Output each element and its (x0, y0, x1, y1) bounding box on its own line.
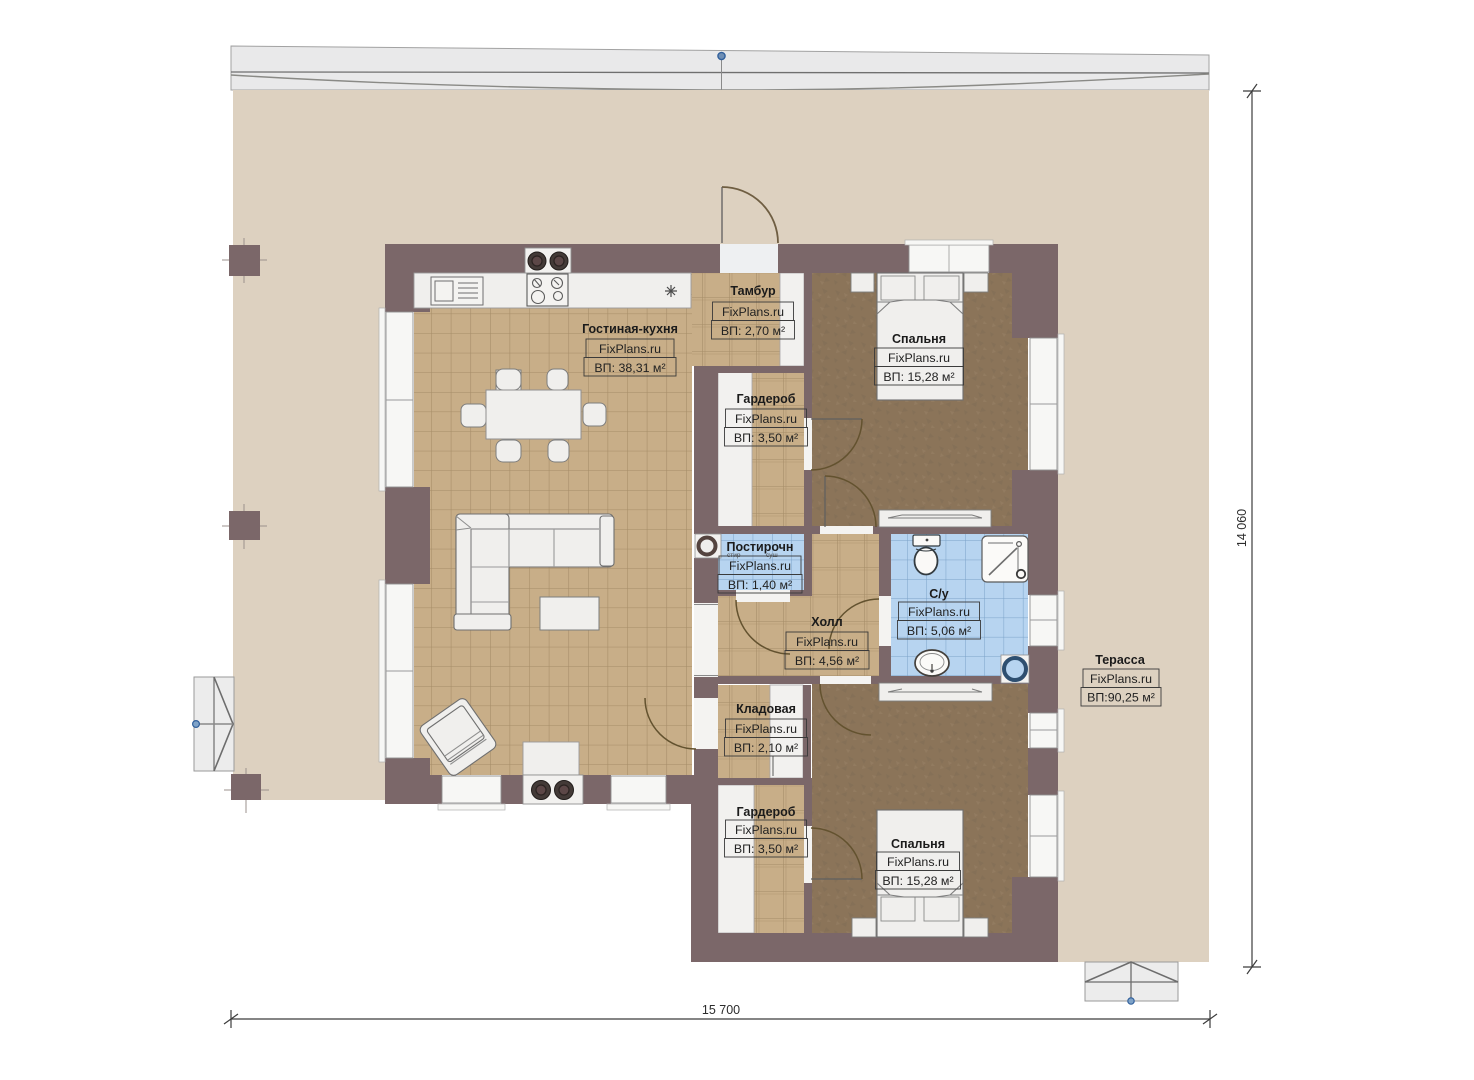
svg-text:15 700: 15 700 (702, 1003, 740, 1017)
svg-text:ВП: 15,28 м²: ВП: 15,28 м² (883, 370, 954, 384)
svg-text:FixPlans.ru: FixPlans.ru (887, 855, 949, 869)
svg-text:FixPlans.ru: FixPlans.ru (908, 605, 970, 619)
svg-text:ВП: 15,28 м²: ВП: 15,28 м² (882, 874, 953, 888)
svg-text:FixPlans.ru: FixPlans.ru (1090, 672, 1152, 686)
svg-text:FixPlans.ru: FixPlans.ru (735, 823, 797, 837)
svg-text:Спальня: Спальня (891, 837, 945, 851)
svg-text:Холл: Холл (811, 615, 842, 629)
svg-text:Гардероб: Гардероб (736, 805, 795, 819)
svg-text:FixPlans.ru: FixPlans.ru (796, 635, 858, 649)
svg-text:ВП: 3,50 м²: ВП: 3,50 м² (734, 842, 798, 856)
svg-text:ВП: 2,70 м²: ВП: 2,70 м² (721, 324, 785, 338)
svg-text:FixPlans.ru: FixPlans.ru (729, 559, 791, 573)
svg-text:Кладовая: Кладовая (736, 702, 796, 716)
svg-text:14 060: 14 060 (1235, 509, 1249, 547)
svg-text:ВП: 2,10 м²: ВП: 2,10 м² (734, 741, 798, 755)
svg-text:FixPlans.ru: FixPlans.ru (722, 305, 784, 319)
svg-text:ВП: 1,40 м²: ВП: 1,40 м² (728, 578, 792, 592)
svg-text:ВП: 38,31 м²: ВП: 38,31 м² (594, 361, 665, 375)
svg-text:ВП: 5,06 м²: ВП: 5,06 м² (907, 624, 971, 638)
svg-text:Постирочн: Постирочн (727, 540, 794, 554)
svg-text:FixPlans.ru: FixPlans.ru (888, 351, 950, 365)
svg-text:FixPlans.ru: FixPlans.ru (599, 342, 661, 356)
svg-text:FixPlans.ru: FixPlans.ru (735, 722, 797, 736)
svg-text:Гардероб: Гардероб (736, 392, 795, 406)
svg-text:ВП: 4,56 м²: ВП: 4,56 м² (795, 654, 859, 668)
svg-text:FixPlans.ru: FixPlans.ru (735, 412, 797, 426)
svg-text:С/у: С/у (929, 587, 949, 601)
svg-text:Гостиная-кухня: Гостиная-кухня (582, 322, 678, 336)
svg-text:ВП:90,25 м²: ВП:90,25 м² (1087, 691, 1155, 705)
svg-text:Терасса: Терасса (1095, 653, 1146, 667)
svg-text:Тамбур: Тамбур (730, 284, 776, 298)
svg-text:Спальня: Спальня (892, 332, 946, 346)
svg-text:ВП: 3,50 м²: ВП: 3,50 м² (734, 431, 798, 445)
